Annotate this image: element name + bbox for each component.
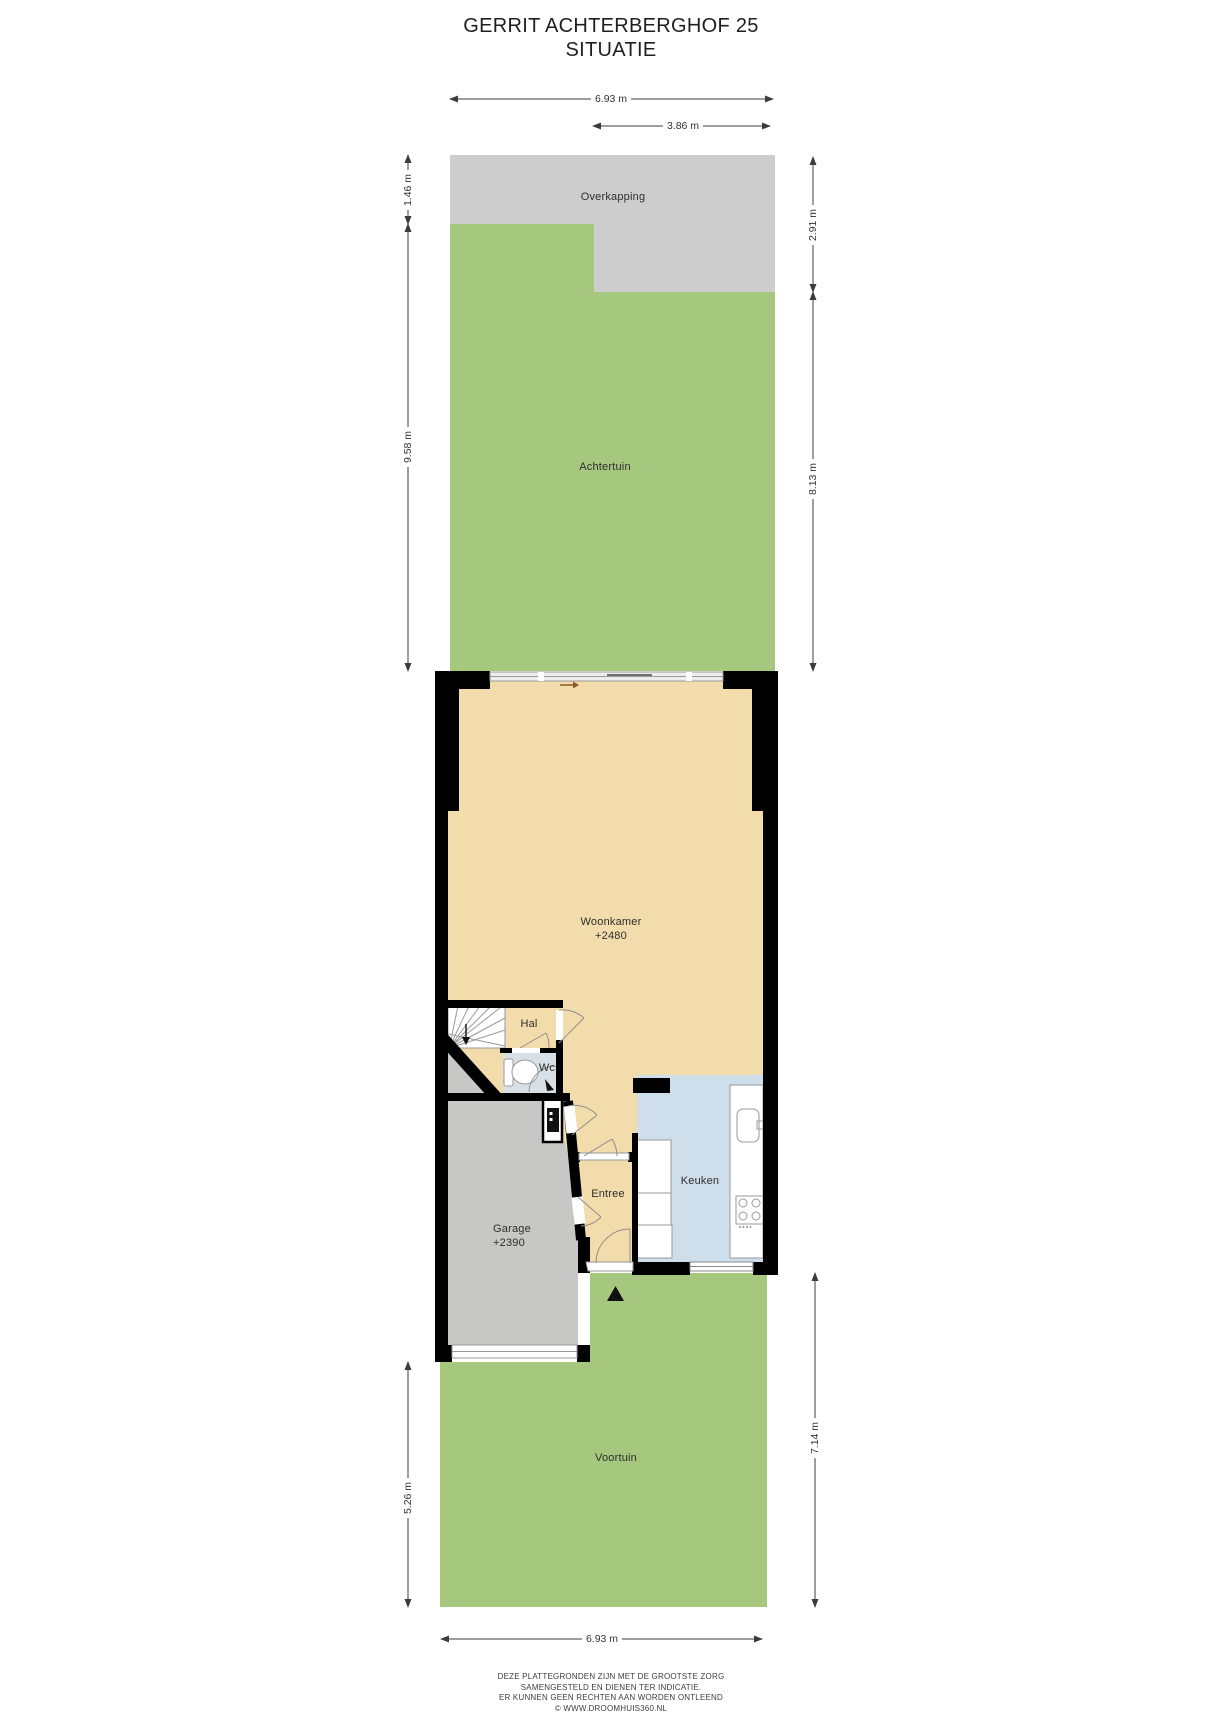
kitchen-window (690, 1262, 753, 1271)
meter-cupboard (543, 1098, 562, 1142)
dim-bottom-total-width: 6.93 m (582, 1633, 622, 1645)
toilet-icon (504, 1059, 538, 1086)
disclaimer-line: DEZE PLATTEGRONDEN ZIJN MET DE GROOTSTE … (401, 1672, 821, 1683)
dim-overkapping-depth-right: 2.91 m (807, 205, 819, 245)
woonkamer-label: Woonkamer (581, 916, 642, 928)
dim-front-garden-depth-right: 7.14 m (809, 1418, 821, 1458)
dim-top-total-width: 6.93 m (591, 93, 631, 105)
wc-label: Wc (539, 1062, 555, 1074)
page-title: GERRIT ACHTERBERGHOF 25 (0, 14, 1222, 38)
sliding-door (490, 672, 723, 681)
disclaimer-line: SAMENGESTELD EN DIENEN TER INDICATIE. (401, 1683, 821, 1694)
disclaimer: DEZE PLATTEGRONDEN ZIJN MET DE GROOTSTE … (401, 1672, 821, 1714)
stairs-icon (448, 1006, 505, 1048)
dim-back-garden-depth-right: 8.13 m (807, 459, 819, 499)
hal-label: Hal (520, 1018, 537, 1030)
dim-back-garden-depth-left: 9.58 m (402, 427, 414, 467)
garage-label: Garage (493, 1223, 531, 1235)
dim-overkapping-width: 3.86 m (663, 120, 703, 132)
garage-overhead-door (452, 1345, 577, 1358)
keuken-label: Keuken (681, 1175, 720, 1187)
overkapping-label: Overkapping (581, 191, 646, 203)
entree-label: Entree (591, 1188, 625, 1200)
garage-level: +2390 (493, 1237, 525, 1249)
floorplan-page: GERRIT ACHTERBERGHOF 25 SITUATIE Overkap… (0, 0, 1222, 1728)
woonkamer-level: +2480 (595, 930, 627, 942)
achtertuin-label: Achtertuin (579, 461, 631, 473)
title-block: GERRIT ACHTERBERGHOF 25 SITUATIE (0, 14, 1222, 62)
floorplan-drawing (0, 0, 1222, 1728)
disclaimer-line: © WWW.DROOMHUIS360.NL (401, 1704, 821, 1715)
dim-front-garden-depth-left: 5.26 m (402, 1478, 414, 1518)
voortuin-label: Voortuin (595, 1452, 637, 1464)
dim-overkapping-depth-left: 1.46 m (402, 170, 414, 210)
disclaimer-line: ER KUNNEN GEEN RECHTEN AAN WORDEN ONTLEE… (401, 1693, 821, 1704)
page-subtitle: SITUATIE (0, 38, 1222, 62)
